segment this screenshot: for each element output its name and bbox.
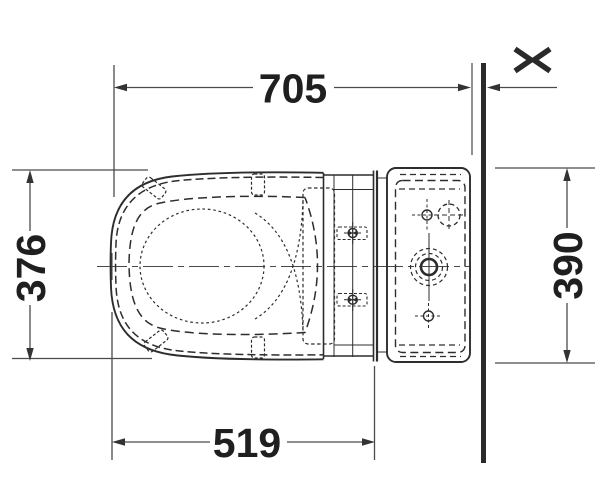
dimension-bottom-value: 519	[213, 420, 281, 466]
toilet-lid-outline	[111, 172, 324, 359]
dimension-top-value: 705	[259, 66, 327, 112]
wall-line	[472, 63, 484, 463]
dimension-top: 705	[114, 65, 557, 197]
dimension-right: 390	[495, 168, 595, 363]
variable-distance-icon	[515, 49, 550, 71]
dimension-left-value: 376	[8, 234, 54, 302]
centerline	[97, 253, 470, 280]
seat-ring-hidden-line	[129, 196, 318, 334]
technical-drawing-toilet-plan-view: 705 376 390 519	[0, 0, 600, 500]
dimension-right-value: 390	[545, 231, 591, 299]
dimension-left: 376	[8, 170, 152, 361]
cistern	[387, 168, 470, 362]
